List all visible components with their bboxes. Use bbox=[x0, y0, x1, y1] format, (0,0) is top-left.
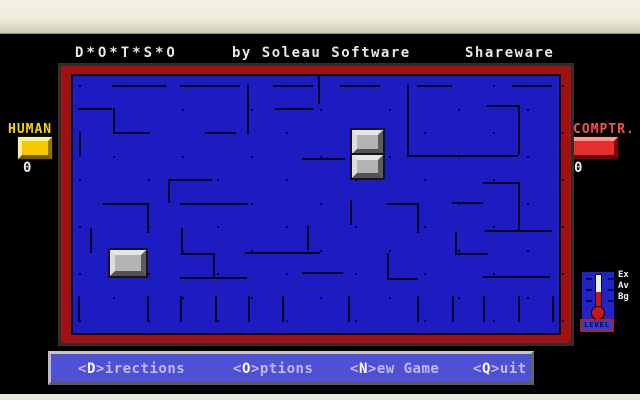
maze-wall bbox=[387, 253, 389, 278]
level-tick bbox=[608, 289, 614, 291]
thermometer-bulb bbox=[591, 306, 605, 320]
maze-wall bbox=[340, 85, 380, 87]
level-options: Ex Av Bg bbox=[618, 270, 640, 303]
maze-wall bbox=[350, 200, 352, 225]
board-dot bbox=[182, 156, 184, 158]
board-frame bbox=[58, 63, 574, 346]
maze-wall bbox=[407, 155, 518, 157]
maze-wall bbox=[518, 296, 520, 322]
board-dot bbox=[251, 203, 253, 205]
board-dot bbox=[527, 109, 529, 111]
board-dot bbox=[217, 273, 219, 275]
board-dot bbox=[389, 250, 391, 252]
game-title: D*O*T*S*O bbox=[75, 45, 178, 63]
maze-wall bbox=[113, 108, 115, 132]
computer-player-label: COMPTR. bbox=[573, 122, 635, 137]
board-dot bbox=[113, 156, 115, 158]
board-dot bbox=[527, 297, 529, 299]
maze-wall bbox=[518, 182, 520, 230]
maze-wall bbox=[417, 203, 419, 233]
level-label: LEVEL bbox=[580, 319, 614, 332]
board-dot bbox=[286, 226, 288, 228]
publisher-byline: by Soleau Software bbox=[232, 45, 411, 63]
maze-wall bbox=[273, 85, 313, 87]
board-dot bbox=[79, 179, 81, 181]
board-dot bbox=[493, 132, 495, 134]
maze-wall bbox=[215, 296, 217, 322]
maze-wall bbox=[302, 158, 345, 160]
maze-wall bbox=[247, 85, 249, 134]
game-board[interactable] bbox=[71, 74, 561, 335]
board-dot bbox=[148, 179, 150, 181]
board-dot bbox=[424, 132, 426, 134]
human-piece-swatch bbox=[18, 137, 52, 159]
license-badge: Shareware bbox=[465, 45, 554, 63]
level-tick bbox=[586, 289, 592, 291]
board-dot bbox=[148, 273, 150, 275]
maze-wall bbox=[168, 179, 170, 203]
board-dot bbox=[320, 250, 322, 252]
maze-wall bbox=[417, 85, 452, 87]
maze-wall bbox=[417, 296, 419, 322]
board-dot bbox=[424, 179, 426, 181]
screen: { "header": { "title": "D*O*T*S*O", "sub… bbox=[0, 0, 640, 400]
maze-wall bbox=[180, 277, 247, 279]
board-dot bbox=[355, 273, 357, 275]
board-dot bbox=[493, 85, 495, 87]
board-dot bbox=[286, 179, 288, 181]
game-piece bbox=[110, 250, 146, 276]
level-indicator-panel bbox=[580, 270, 616, 325]
level-tick bbox=[608, 278, 614, 280]
maze-wall bbox=[275, 108, 313, 110]
maze-wall bbox=[552, 296, 554, 322]
menu-bar: <D>irections <O>ptions <N>ew Game <Q>uit bbox=[48, 351, 534, 385]
board-dot bbox=[424, 226, 426, 228]
board-dot bbox=[355, 320, 357, 322]
board-dot bbox=[562, 226, 564, 228]
board-dot bbox=[493, 179, 495, 181]
maze-wall bbox=[302, 272, 343, 274]
maze-wall bbox=[181, 253, 213, 255]
game-piece bbox=[352, 130, 383, 154]
maze-wall bbox=[245, 252, 320, 254]
menu-item-new-game[interactable]: <N>ew Game bbox=[350, 361, 439, 377]
maze-wall bbox=[518, 105, 520, 155]
maze-wall bbox=[78, 108, 112, 110]
maze-wall bbox=[181, 228, 183, 253]
maze-wall bbox=[455, 232, 457, 253]
maze-wall bbox=[170, 179, 212, 181]
maze-wall bbox=[487, 105, 518, 107]
board-dot bbox=[458, 297, 460, 299]
maze-wall bbox=[103, 203, 147, 205]
window-top-bar bbox=[0, 0, 640, 34]
maze-wall bbox=[205, 132, 236, 134]
window-bottom-bar bbox=[0, 394, 640, 400]
board-dot bbox=[389, 156, 391, 158]
board-dot bbox=[355, 179, 357, 181]
board-dot bbox=[79, 273, 81, 275]
human-player-label: HUMAN bbox=[8, 122, 52, 137]
board-dot bbox=[493, 273, 495, 275]
board-dot bbox=[320, 109, 322, 111]
menu-item-directions[interactable]: <D>irections bbox=[78, 361, 185, 377]
level-option-average: Av bbox=[618, 281, 640, 292]
board-dot bbox=[251, 156, 253, 158]
maze-wall bbox=[180, 296, 182, 322]
computer-score: 0 bbox=[574, 160, 582, 176]
board-dot bbox=[217, 320, 219, 322]
maze-wall bbox=[248, 296, 250, 322]
board-dot bbox=[217, 226, 219, 228]
board-dot bbox=[217, 179, 219, 181]
maze-wall bbox=[348, 296, 350, 322]
board-dot bbox=[320, 203, 322, 205]
maze-wall bbox=[282, 296, 284, 322]
board-dot bbox=[286, 320, 288, 322]
game-piece bbox=[352, 155, 383, 178]
maze-wall bbox=[512, 85, 552, 87]
board-dot bbox=[286, 273, 288, 275]
board-dot bbox=[79, 85, 81, 87]
maze-wall bbox=[387, 203, 418, 205]
board-dot bbox=[389, 109, 391, 111]
board-dot bbox=[182, 109, 184, 111]
maze-wall bbox=[318, 74, 320, 104]
maze-wall bbox=[79, 132, 81, 156]
maze-wall bbox=[387, 278, 418, 280]
board-dot bbox=[113, 297, 115, 299]
board-dot bbox=[562, 179, 564, 181]
maze-wall bbox=[78, 296, 80, 322]
human-score: 0 bbox=[23, 160, 31, 176]
menu-item-quit[interactable]: <Q>uit bbox=[473, 361, 527, 377]
level-option-expert: Ex bbox=[618, 270, 640, 281]
level-tick bbox=[586, 300, 592, 302]
maze-wall bbox=[113, 132, 148, 134]
maze-wall bbox=[483, 182, 518, 184]
level-tick bbox=[586, 278, 592, 280]
maze-wall bbox=[112, 85, 166, 87]
board-dot bbox=[251, 297, 253, 299]
board-dot bbox=[251, 109, 253, 111]
board-dot bbox=[527, 250, 529, 252]
maze-wall bbox=[90, 228, 92, 253]
board-dot bbox=[562, 320, 564, 322]
maze-wall bbox=[180, 85, 240, 87]
maze-wall bbox=[213, 253, 215, 277]
board-dot bbox=[562, 273, 564, 275]
maze-wall bbox=[485, 230, 552, 232]
board-dot bbox=[458, 250, 460, 252]
board-dot bbox=[182, 297, 184, 299]
board-dot bbox=[527, 203, 529, 205]
board-dot bbox=[562, 85, 564, 87]
maze-wall bbox=[483, 276, 550, 278]
board-dot bbox=[562, 132, 564, 134]
level-tick bbox=[608, 300, 614, 302]
board-dot bbox=[493, 320, 495, 322]
maze-wall bbox=[455, 253, 488, 255]
board-dot bbox=[424, 320, 426, 322]
maze-wall bbox=[147, 296, 149, 322]
maze-wall bbox=[407, 85, 409, 155]
board-dot bbox=[458, 109, 460, 111]
board-dot bbox=[424, 273, 426, 275]
level-option-beginner: Bg bbox=[618, 292, 640, 303]
maze-wall bbox=[452, 202, 483, 204]
board-dot bbox=[79, 226, 81, 228]
maze-wall bbox=[180, 203, 248, 205]
board-dot bbox=[527, 156, 529, 158]
board-dot bbox=[286, 132, 288, 134]
board-dot bbox=[320, 297, 322, 299]
board-dot bbox=[493, 226, 495, 228]
maze-wall bbox=[307, 226, 309, 250]
maze-wall bbox=[483, 296, 485, 322]
board-dot bbox=[148, 132, 150, 134]
maze-wall bbox=[147, 203, 149, 233]
menu-item-options[interactable]: <O>ptions bbox=[233, 361, 313, 377]
maze-wall bbox=[452, 296, 454, 322]
board-dot bbox=[355, 226, 357, 228]
board-dot bbox=[389, 297, 391, 299]
board-border bbox=[61, 66, 571, 343]
